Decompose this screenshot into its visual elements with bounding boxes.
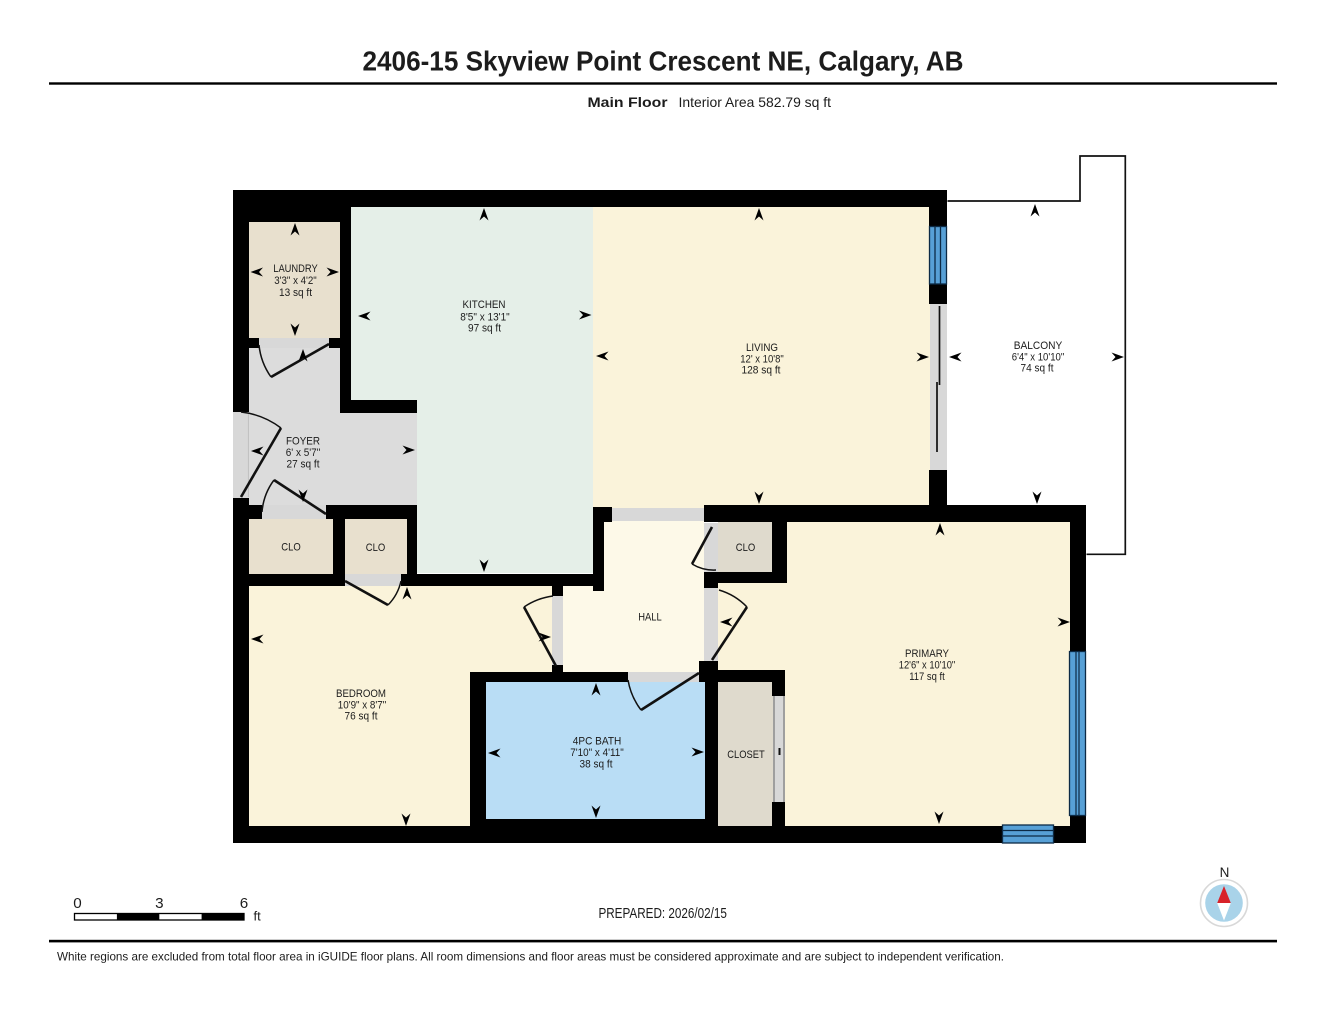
svg-text:LAUNDRY: LAUNDRY	[273, 263, 318, 275]
svg-text:97 sq ft: 97 sq ft	[468, 323, 501, 335]
svg-text:27 sq ft: 27 sq ft	[287, 459, 320, 471]
svg-text:Main Floor: Main Floor	[588, 95, 669, 110]
svg-text:BEDROOM: BEDROOM	[336, 688, 386, 700]
svg-text:12'6" x 10'10": 12'6" x 10'10"	[899, 660, 956, 672]
svg-text:White regions are excluded fro: White regions are excluded from total fl…	[57, 950, 1004, 964]
svg-text:PRIMARY: PRIMARY	[905, 648, 949, 660]
svg-text:7'10" x 4'11": 7'10" x 4'11"	[570, 747, 624, 759]
svg-text:ft: ft	[254, 909, 262, 924]
svg-text:0: 0	[73, 895, 81, 912]
svg-text:KITCHEN: KITCHEN	[463, 299, 506, 311]
svg-text:3'3" x 4'2": 3'3" x 4'2"	[274, 275, 317, 287]
svg-text:CLO: CLO	[281, 542, 301, 554]
svg-text:3: 3	[155, 895, 163, 912]
svg-text:6: 6	[240, 895, 248, 912]
svg-text:74 sq ft: 74 sq ft	[1021, 363, 1054, 375]
svg-text:PREPARED: 2026/02/15: PREPARED: 2026/02/15	[598, 905, 727, 922]
svg-text:Interior Area 582.79 sq ft: Interior Area 582.79 sq ft	[679, 95, 832, 110]
svg-text:FOYER: FOYER	[286, 436, 320, 448]
svg-text:N: N	[1220, 865, 1230, 880]
svg-text:76 sq ft: 76 sq ft	[345, 711, 378, 723]
svg-text:2406-15 Skyview Point Crescent: 2406-15 Skyview Point Crescent NE, Calga…	[363, 45, 964, 76]
svg-text:CLO: CLO	[736, 542, 756, 554]
svg-text:4PC BATH: 4PC BATH	[573, 736, 622, 748]
svg-text:128 sq ft: 128 sq ft	[742, 365, 781, 377]
svg-text:6' x 5'7": 6' x 5'7"	[286, 447, 321, 459]
svg-text:CLO: CLO	[366, 542, 386, 554]
svg-text:CLOSET: CLOSET	[727, 749, 765, 761]
svg-text:LIVING: LIVING	[746, 342, 778, 354]
svg-text:38 sq ft: 38 sq ft	[580, 759, 613, 771]
svg-text:117 sq ft: 117 sq ft	[909, 671, 945, 683]
svg-text:HALL: HALL	[638, 612, 662, 624]
svg-text:13 sq ft: 13 sq ft	[279, 287, 312, 299]
svg-text:BALCONY: BALCONY	[1014, 340, 1063, 352]
